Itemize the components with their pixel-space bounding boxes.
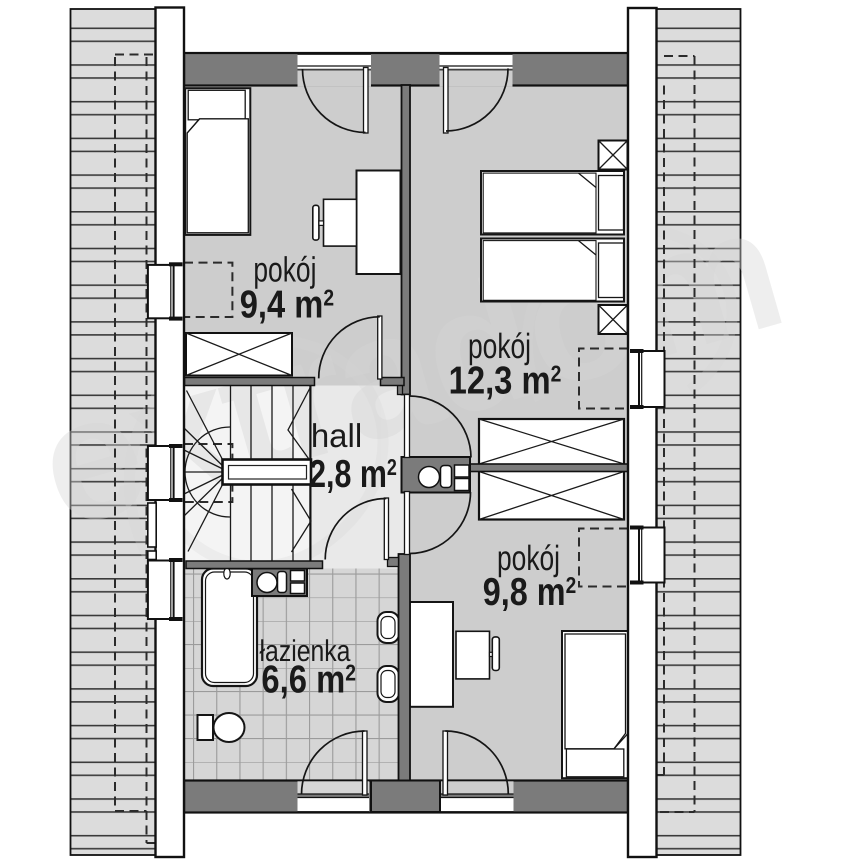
svg-text:12,3 m2: 12,3 m2 (449, 360, 562, 403)
svg-text:hall: hall (311, 417, 362, 454)
svg-text:2,8 m2: 2,8 m2 (309, 453, 397, 496)
svg-text:9,8 m2: 9,8 m2 (483, 571, 576, 614)
svg-text:9,4 m2: 9,4 m2 (240, 284, 334, 327)
svg-text:6,6 m2: 6,6 m2 (261, 659, 356, 702)
